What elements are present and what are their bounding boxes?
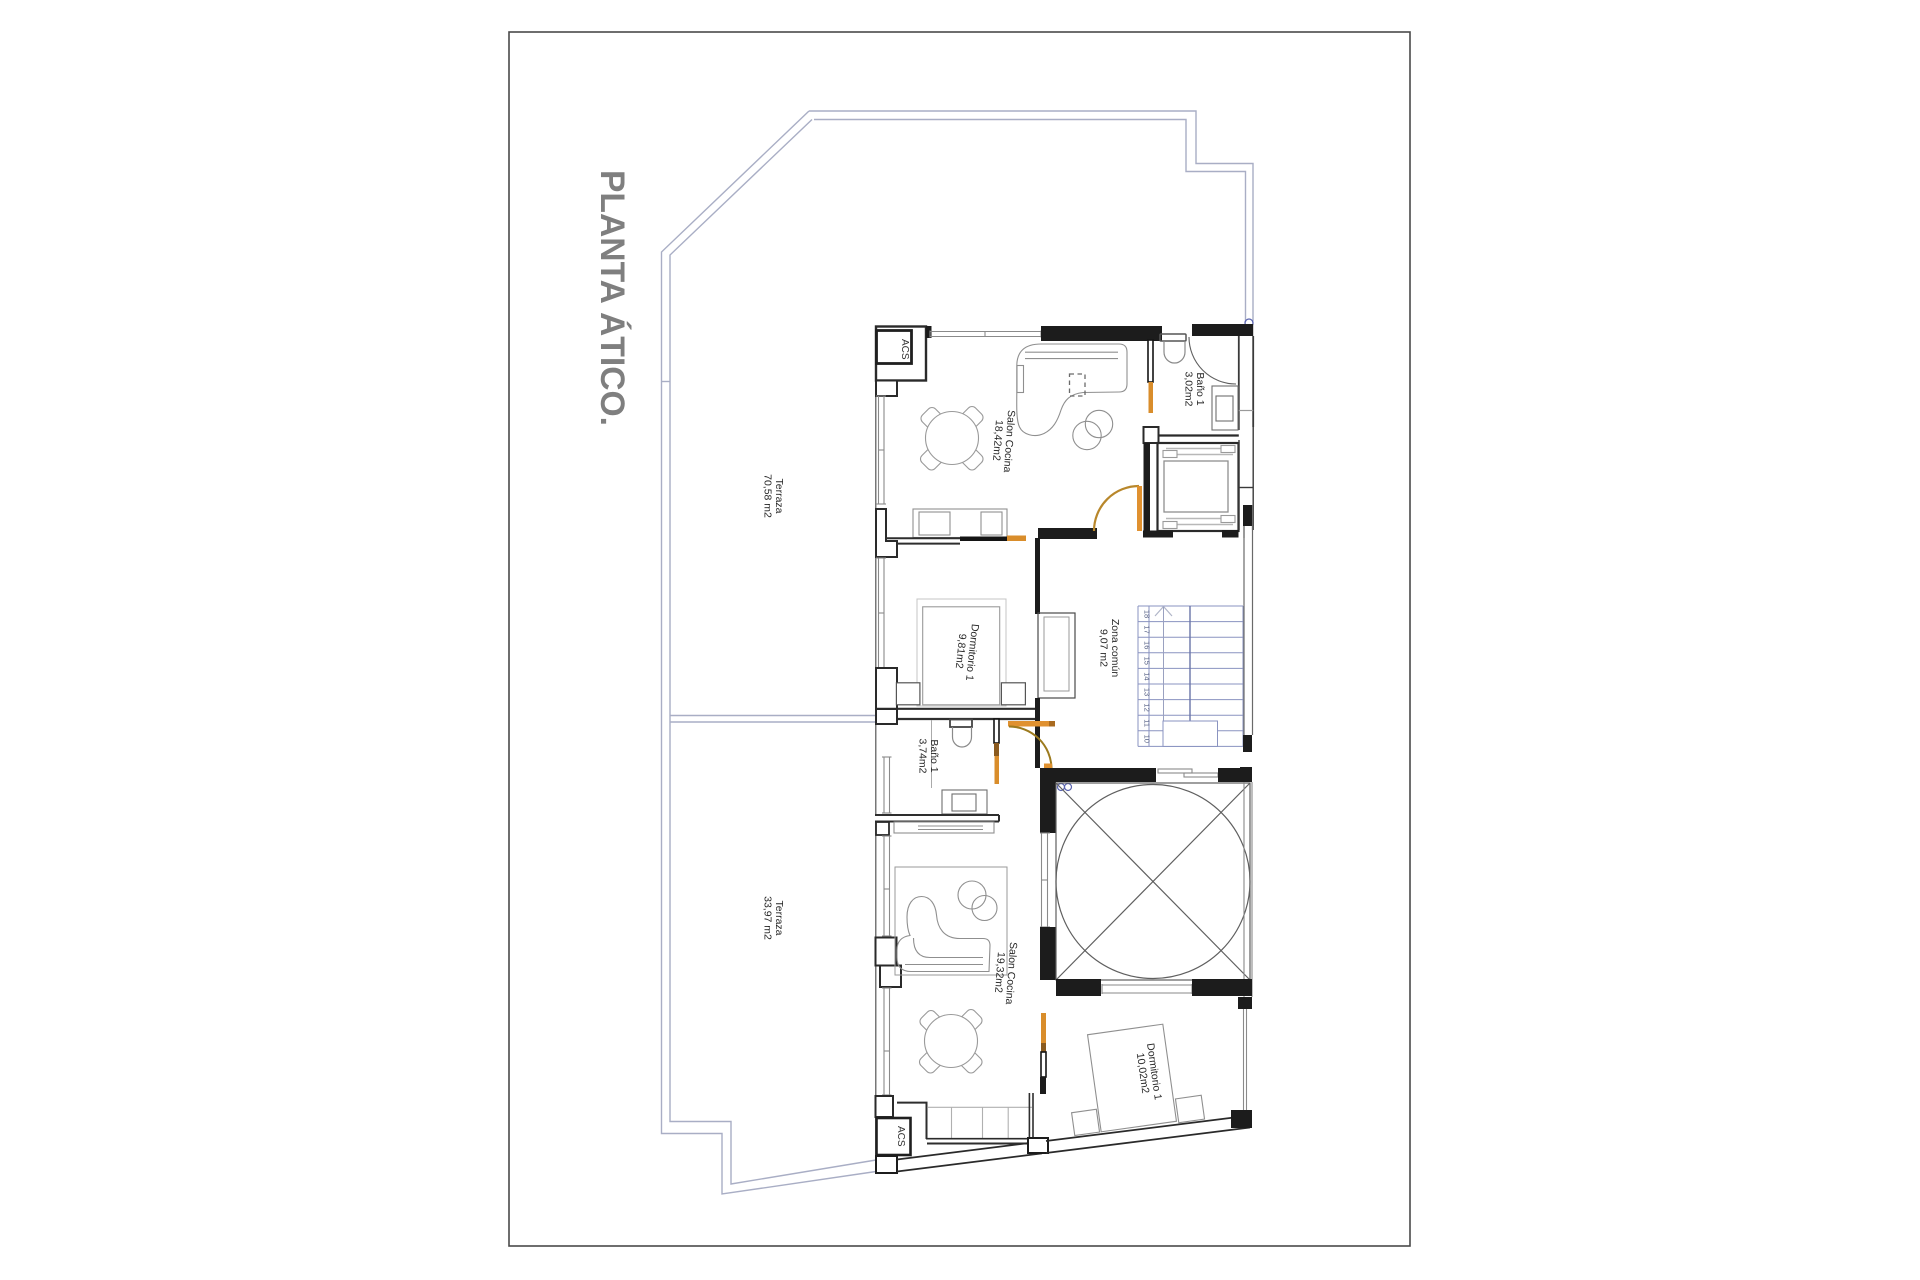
svg-text:12: 12 bbox=[1143, 703, 1152, 711]
svg-text:10: 10 bbox=[1143, 735, 1152, 743]
svg-text:Terraza33,97 m2: Terraza33,97 m2 bbox=[762, 896, 786, 940]
svg-text:PLANTA ÁTICO.: PLANTA ÁTICO. bbox=[593, 170, 633, 426]
svg-text:16: 16 bbox=[1143, 641, 1152, 649]
svg-text:Baño 13,74m2: Baño 13,74m2 bbox=[917, 738, 941, 773]
svg-text:15: 15 bbox=[1143, 657, 1152, 665]
svg-text:ACS: ACS bbox=[899, 339, 910, 360]
svg-text:18: 18 bbox=[1143, 610, 1152, 618]
svg-text:Terraza70,58 m2: Terraza70,58 m2 bbox=[762, 474, 786, 518]
svg-text:11: 11 bbox=[1143, 719, 1152, 727]
svg-text:ACS: ACS bbox=[895, 1126, 906, 1147]
svg-text:14: 14 bbox=[1143, 672, 1152, 680]
svg-text:17: 17 bbox=[1143, 625, 1152, 633]
svg-text:13: 13 bbox=[1143, 688, 1152, 696]
svg-text:Baño 13,02m2: Baño 13,02m2 bbox=[1183, 371, 1207, 406]
